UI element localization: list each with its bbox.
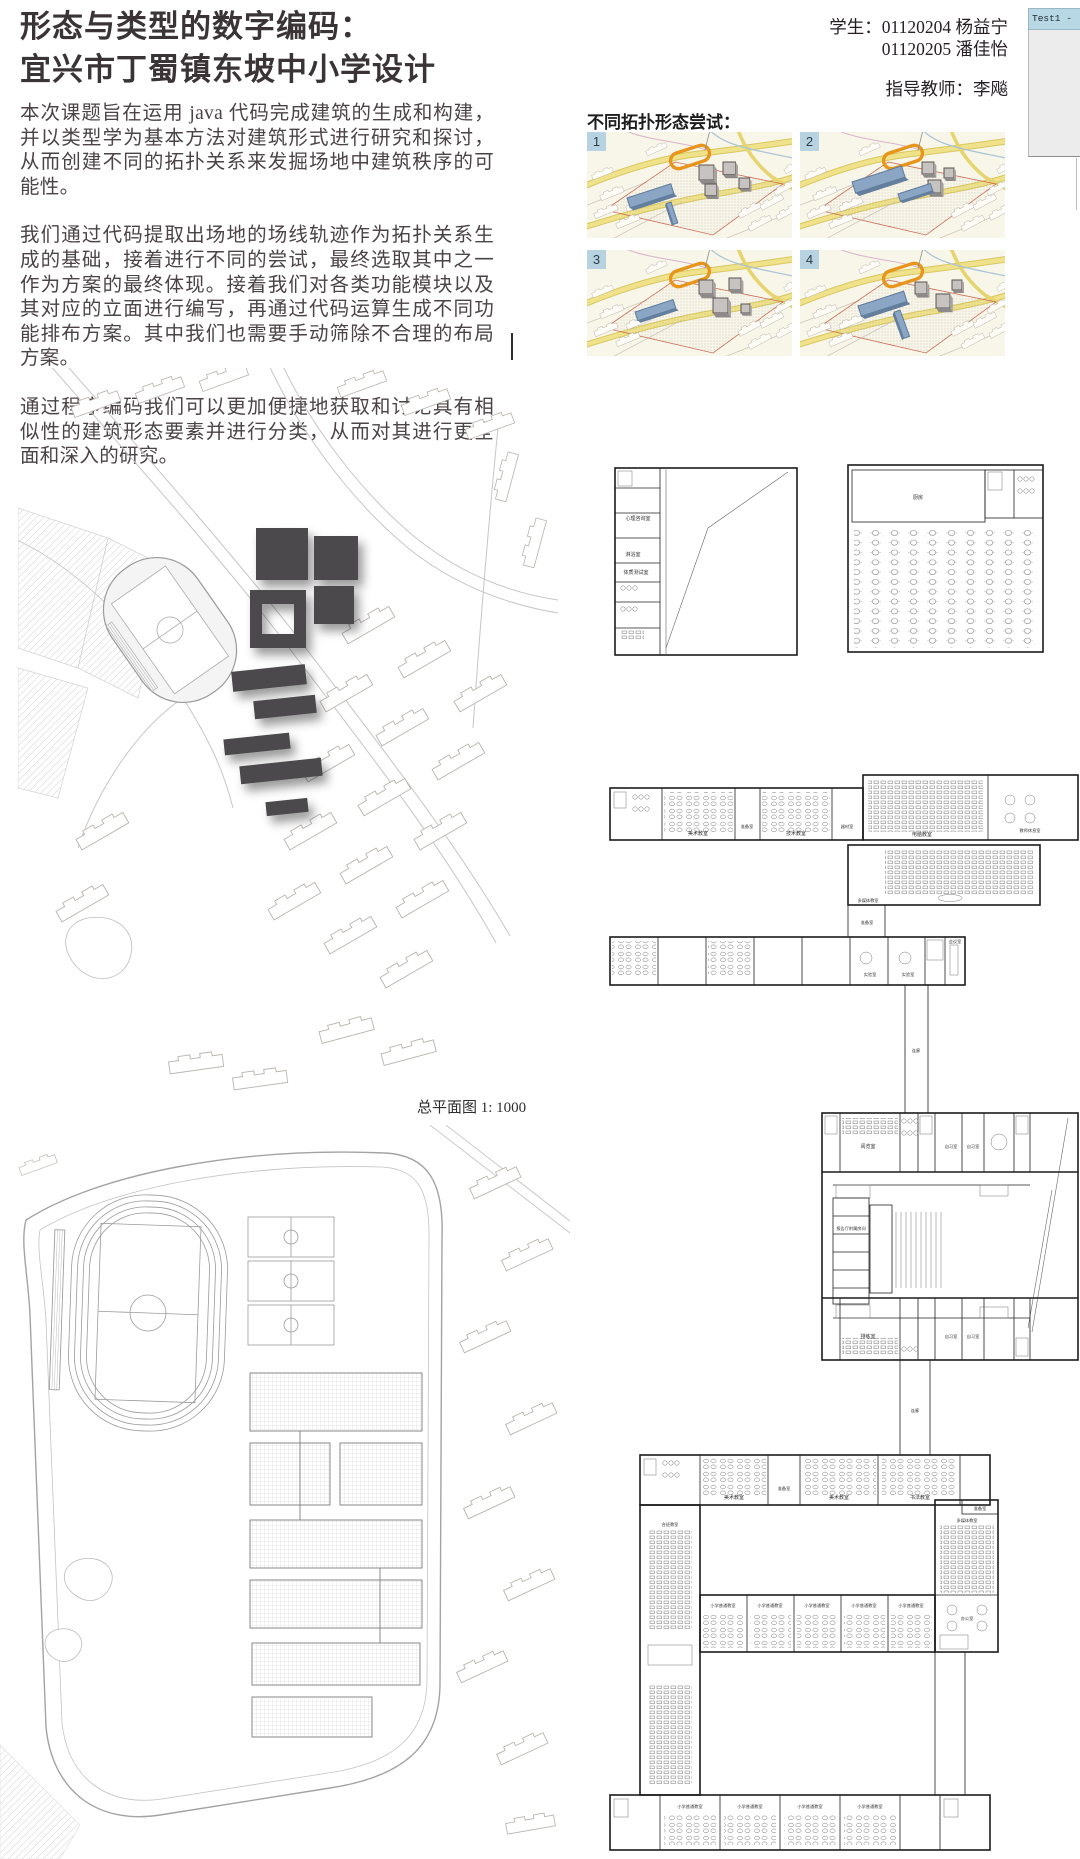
site1-residential-blocks <box>54 368 546 1090</box>
topology-badge-1: 1 <box>587 132 606 151</box>
topology-grid: 1 2 3 4 <box>587 132 1005 356</box>
student-line-2: 01120205 潘佳怡 <box>700 38 1008 60</box>
student-line-1: 学生：01120204 杨益宁 <box>700 16 1008 38</box>
topology-test-3: 3 <box>587 250 792 356</box>
room-label: 合班教室 <box>662 1521 679 1528</box>
test1-window[interactable]: Test1 - <box>1028 8 1080 157</box>
room-label: 自习室 <box>945 1333 958 1340</box>
room-label: 自习室 <box>945 1143 958 1150</box>
room-label: 准备室 <box>861 919 874 926</box>
room-label: 美术教室 <box>688 830 708 837</box>
site1-pond <box>66 917 132 978</box>
intro-paragraph-2: 我们通过代码提取出场地的场线轨迹作为拓扑关系生成的基础，接着进行不同的尝试，最终… <box>20 224 494 372</box>
title-line-1: 形态与类型的数字编码： <box>20 5 436 48</box>
room-label: 排练室 <box>860 1333 875 1340</box>
room-label: 小学普通教室 <box>851 1602 876 1609</box>
room-label: 自习室 <box>967 1333 980 1340</box>
room-label: 淋浴室 <box>625 551 640 558</box>
room-label: 小学普通教室 <box>677 1803 702 1810</box>
room-label: 心理咨询室 <box>625 515 650 522</box>
room-label: 体质测试室 <box>623 569 648 576</box>
topology-scene-3 <box>587 250 792 356</box>
site2-ponds-fields <box>0 1558 112 1859</box>
room-label: 多媒体教室 <box>858 897 879 904</box>
topology-badge-3: 3 <box>587 250 606 269</box>
floor-plan-classroom-building: 美术教室 准备室 美术教室 书法教室 合班教室 小学普通教室 小学普通教室 小学… <box>610 1455 998 1850</box>
room-label: 会议室 <box>949 938 962 945</box>
site2-school-buildings <box>250 1373 422 1737</box>
intro-paragraph-1: 本次课题旨在运用 java 代码完成建筑的生成和构建，并以类型学为基本方法对建筑… <box>20 102 494 200</box>
topology-test-2: 2 <box>800 132 1005 238</box>
room-label: 报告厅附属房间 <box>836 1225 865 1232</box>
floor-plan-fitness: 心理咨询室 淋浴室 体质测试室 <box>615 468 797 655</box>
room-label: 小学普通教室 <box>804 1602 829 1609</box>
room-label: 厨房 <box>913 494 923 501</box>
topology-scene-1 <box>587 132 792 238</box>
topology-scene-4 <box>800 250 1005 356</box>
test1-window-body[interactable] <box>1028 30 1080 157</box>
room-label: 电脑教室 <box>912 831 932 838</box>
title-line-2: 宜兴市丁蜀镇东坡中小学设计 <box>20 48 436 91</box>
topology-badge-4: 4 <box>800 250 819 269</box>
floor-plans: 心理咨询室 淋浴室 体质测试室 厨房 美术教室 准备室 技术教室 器材室 电脑教… <box>600 430 1080 1859</box>
site-plan-1: 总平面图 1: 1000 <box>18 368 563 1118</box>
test1-window-titlebar[interactable]: Test1 - <box>1028 8 1080 30</box>
north-mark <box>511 333 513 360</box>
corridor-label: 连廊 <box>911 1407 919 1414</box>
site-plan-caption: 总平面图 1: 1000 <box>417 1099 526 1116</box>
room-label: 小学普通教室 <box>857 1803 882 1810</box>
topology-test-1: 1 <box>587 132 792 238</box>
room-label: 办公室 <box>961 1615 974 1622</box>
site2-running-track <box>48 1192 230 1434</box>
room-label: 小学普通教室 <box>737 1803 762 1810</box>
advisor-line: 指导教师：李飚 <box>700 76 1008 101</box>
room-label: 实验室 <box>902 971 915 978</box>
floor-plan-special-classrooms: 美术教室 准备室 技术教室 器材室 电脑教室 教师休息室 多媒体教室 准备室 实… <box>610 775 1078 1113</box>
room-label: 小学普通教室 <box>757 1602 782 1609</box>
site2-basketball-courts <box>248 1217 334 1345</box>
room-label: 小学普通教室 <box>710 1602 735 1609</box>
student-credits: 学生：01120204 杨益宁 01120205 潘佳怡 <box>700 16 1008 60</box>
room-label: 阅览室 <box>860 1143 875 1150</box>
room-label: 自习室 <box>967 1143 980 1150</box>
site-plan-2 <box>0 1125 570 1859</box>
topology-test-4: 4 <box>800 250 1005 356</box>
room-label: 书法教室 <box>910 1494 930 1501</box>
room-label: 实验室 <box>864 971 877 978</box>
topology-badge-2: 2 <box>800 132 819 151</box>
room-label: 准备室 <box>974 1505 987 1512</box>
room-label: 小学普通教室 <box>898 1602 923 1609</box>
poster-page: { "header": { "title_line1": "形态与类型的数字编码… <box>0 0 1080 1859</box>
floor-plan-library-auditorium: 阅览室 自习室 自习室 报告厅附属房间 排练室 自习室 自习室 连廊 <box>822 1113 1078 1455</box>
window-edge-line <box>1076 158 1077 210</box>
room-label: 美术教室 <box>829 1494 849 1501</box>
room-label: 美术教室 <box>724 1494 744 1501</box>
room-label: 准备室 <box>778 1485 791 1492</box>
page-title: 形态与类型的数字编码： 宜兴市丁蜀镇东坡中小学设计 <box>20 5 436 91</box>
topology-heading: 不同拓扑形态尝试： <box>587 108 740 133</box>
floor-plan-canteen: 厨房 <box>848 465 1043 652</box>
room-label: 小学普通教室 <box>797 1803 822 1810</box>
corridor-label: 连廊 <box>912 1047 920 1054</box>
room-label: 教师休息室 <box>1020 827 1041 834</box>
topology-scene-2 <box>800 132 1005 238</box>
room-label: 器材室 <box>841 823 854 830</box>
room-label: 准备室 <box>741 823 754 830</box>
room-label: 多媒体教室 <box>957 1517 978 1524</box>
room-label: 技术教室 <box>786 830 806 837</box>
